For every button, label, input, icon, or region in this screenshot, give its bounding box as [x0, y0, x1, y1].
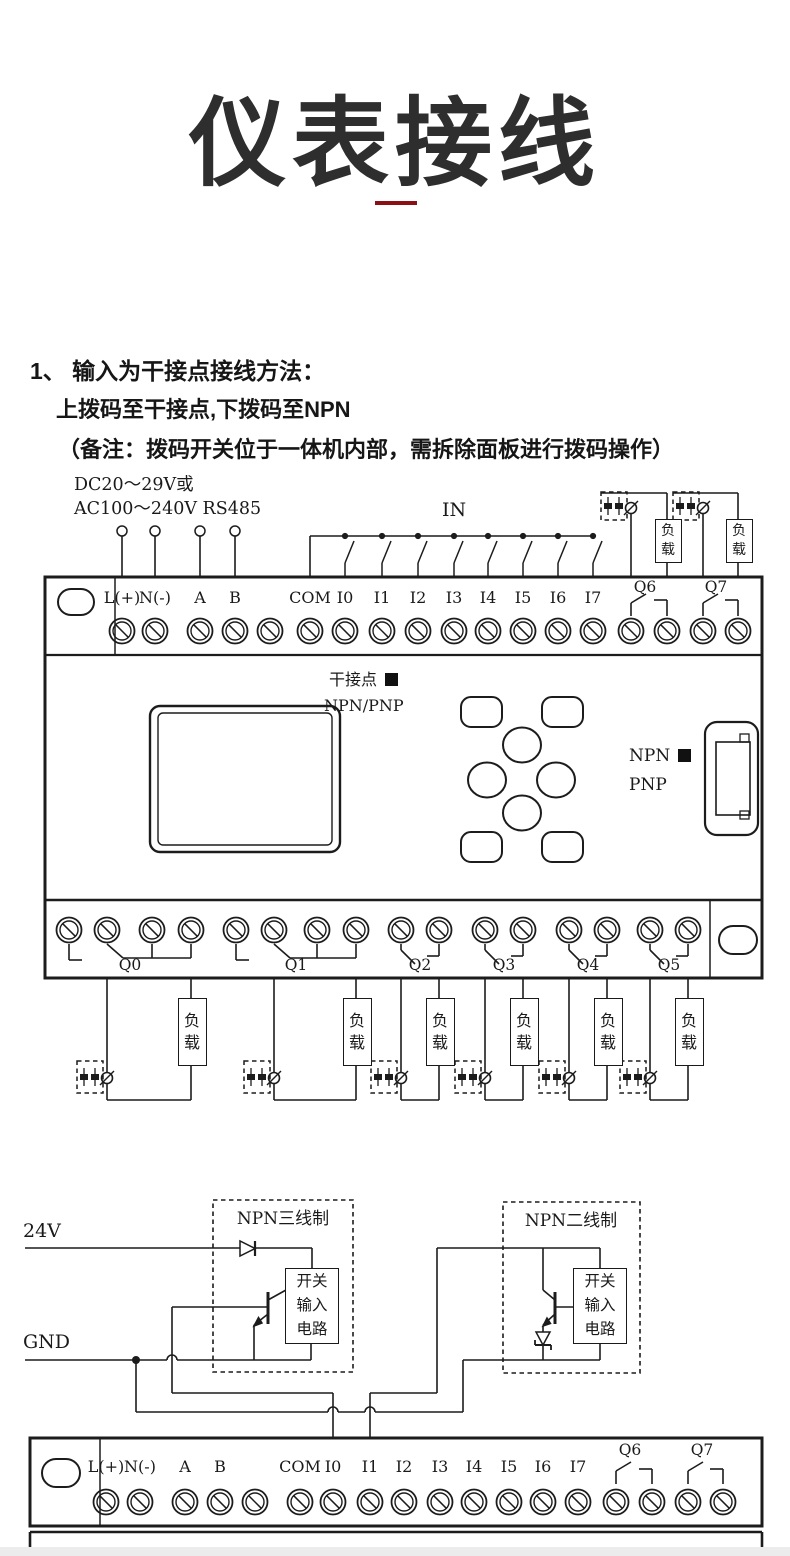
dip-switch2-square-icon: [678, 749, 691, 762]
switch-blade-icon: [488, 541, 497, 563]
lcd-screen: [150, 706, 340, 852]
screw-slot: [327, 1496, 340, 1509]
terminal-label: COM: [279, 1457, 321, 1476]
screw-slot: [625, 625, 638, 638]
terminal-label: B: [214, 1457, 226, 1476]
screw-slot: [644, 924, 657, 937]
screw-slot: [63, 924, 76, 937]
screw-slot: [433, 924, 446, 937]
wire-terminal-ring: [150, 526, 160, 536]
power-label-line1: DC20～29V或: [74, 471, 194, 496]
dip-switch1-text: 干接点: [329, 670, 377, 689]
screw-slot: [717, 1496, 730, 1509]
terminal-label: I3: [432, 1457, 449, 1476]
power-label-line2: AC100～240V RS485: [74, 495, 261, 520]
section1-line2: 上拨码至干接点,下拨码至NPN: [56, 392, 351, 424]
switch-input-circuit-box-2wire: 开关 输入 电路: [573, 1268, 627, 1344]
suppressor-icon: [615, 503, 623, 509]
load-box: 负载: [675, 998, 704, 1066]
load-box: 负载: [510, 998, 539, 1066]
screw-slot: [230, 924, 243, 937]
screw-slot: [503, 1496, 516, 1509]
suppressor-icon: [623, 1074, 631, 1080]
suppressor-icon: [687, 503, 695, 509]
terminal-label: N(-): [139, 588, 171, 607]
dip-switch1-sub: NPN/PNP: [324, 696, 404, 715]
load-label: 负载: [516, 1010, 533, 1053]
screw-slot: [434, 1496, 447, 1509]
screw-slot: [601, 924, 614, 937]
suppressor-icon: [676, 503, 684, 509]
suppressor-icon: [634, 1074, 642, 1080]
circuit-line: 开关: [286, 1269, 338, 1293]
screw-slot: [100, 1496, 113, 1509]
terminal-label: I7: [570, 1457, 587, 1476]
load-label: 负载: [349, 1010, 366, 1053]
terminal-label: A: [179, 1457, 191, 1476]
relay-label: Q6: [619, 1441, 642, 1459]
suppressor-icon: [91, 1074, 99, 1080]
terminal-label: I2: [410, 588, 427, 607]
bus-junction-dot: [555, 533, 560, 538]
keypad-button: [542, 697, 583, 727]
circuit-line: 电路: [574, 1317, 626, 1341]
suppressor-icon: [258, 1074, 266, 1080]
sensor2-title: NPN二线制: [525, 1206, 617, 1231]
wire-terminal-ring: [195, 526, 205, 536]
mounting-hole: [719, 926, 757, 954]
load-label: 负载: [732, 522, 747, 560]
page-cut-gray-bar: [0, 1547, 790, 1556]
relay-label: Q1: [285, 956, 308, 974]
keypad-nav-button: [503, 796, 541, 831]
terminal-label: I0: [325, 1457, 342, 1476]
switch-blade-icon: [382, 541, 391, 563]
load-box: 负载: [726, 519, 753, 563]
terminal-label: L(+): [104, 588, 141, 607]
load-box: 负载: [178, 998, 207, 1066]
screw-slot: [682, 924, 695, 937]
screw-slot: [214, 1496, 227, 1509]
screw-slot: [517, 924, 530, 937]
screw-slot: [572, 1496, 585, 1509]
dip-switch1-label: 干接点: [329, 666, 398, 690]
wire-terminal-ring: [230, 526, 240, 536]
terminal-label: I5: [515, 588, 532, 607]
terminal-label: I6: [535, 1457, 552, 1476]
screw-slot: [149, 625, 162, 638]
screw-slot: [311, 924, 324, 937]
screw-slot: [101, 924, 114, 937]
section1-line3: （备注：拨码开关位于一体机内部，需拆除面板进行拨码操作）: [58, 432, 674, 464]
mounting-hole: [58, 589, 94, 615]
load-label: 负载: [661, 522, 676, 560]
load-label: 负载: [184, 1010, 201, 1053]
load-box: 负载: [343, 998, 372, 1066]
screw-slot: [412, 625, 425, 638]
screw-slot: [395, 924, 408, 937]
dip-switch2-sub: PNP: [629, 775, 667, 795]
suppressor-icon: [374, 1074, 382, 1080]
bus-junction-dot: [590, 533, 595, 538]
screw-slot: [364, 1496, 377, 1509]
terminal-label: I0: [337, 588, 354, 607]
screw-slot: [682, 1496, 695, 1509]
suppressor-icon: [469, 1074, 477, 1080]
screw-slot: [448, 625, 461, 638]
zener-diode-icon: [536, 1332, 550, 1345]
screw-slot: [468, 1496, 481, 1509]
screw-slot: [552, 625, 565, 638]
terminal-label: I6: [550, 588, 567, 607]
screw-slot: [732, 625, 745, 638]
load-box: 负载: [594, 998, 623, 1066]
dip-switch2-text: NPN: [629, 746, 670, 766]
terminal-label: COM: [289, 588, 331, 607]
circuit-line: 输入: [286, 1293, 338, 1317]
screw-slot: [646, 1496, 659, 1509]
screw-slot: [398, 1496, 411, 1509]
title-underline-decoration: [375, 201, 417, 205]
suppressor-icon: [247, 1074, 255, 1080]
relay-label: Q0: [119, 956, 142, 974]
in-bus-label: IN: [442, 499, 466, 521]
screw-slot: [249, 1496, 262, 1509]
screw-slot: [339, 625, 352, 638]
rail-gnd-label: GND: [23, 1331, 70, 1353]
bus-junction-dot: [415, 533, 420, 538]
switch-blade-icon: [454, 541, 463, 563]
sensor3-title: NPN三线制: [237, 1204, 329, 1229]
relay-label: Q2: [409, 956, 432, 974]
terminal-label: I5: [501, 1457, 518, 1476]
load-label: 负载: [600, 1010, 617, 1053]
screw-slot: [134, 1496, 147, 1509]
load-label: 负载: [681, 1010, 698, 1053]
suppressor-icon: [553, 1074, 561, 1080]
load-label: 负载: [432, 1010, 449, 1053]
suppressor-icon: [458, 1074, 466, 1080]
relay-contact-icon: [688, 1462, 703, 1471]
terminal-label: I3: [446, 588, 463, 607]
suppressor-icon: [542, 1074, 550, 1080]
screw-slot: [179, 1496, 192, 1509]
relay-label: Q6: [634, 578, 657, 596]
switch-input-circuit-box-3wire: 开关 输入 电路: [285, 1268, 339, 1344]
keypad-button: [542, 832, 583, 862]
screw-slot: [294, 1496, 307, 1509]
wire-terminal-ring: [117, 526, 127, 536]
load-box: 负载: [426, 998, 455, 1066]
side-connector-inner: [716, 742, 750, 815]
rail-24v-label: 24V: [23, 1220, 61, 1242]
side-connector-pin: [740, 734, 749, 742]
relay-contact-icon: [616, 1462, 631, 1471]
screw-slot: [610, 1496, 623, 1509]
screw-slot: [185, 924, 198, 937]
bus-junction-dot: [451, 533, 456, 538]
suppressor-icon: [385, 1074, 393, 1080]
screw-slot: [146, 924, 159, 937]
mounting-hole: [42, 1459, 80, 1487]
relay-label: Q3: [493, 956, 516, 974]
screw-slot: [482, 625, 495, 638]
screw-slot: [229, 625, 242, 638]
terminal-label: N(-): [124, 1457, 156, 1476]
circuit-line: 开关: [574, 1269, 626, 1293]
switch-blade-icon: [418, 541, 427, 563]
screw-slot: [268, 924, 281, 937]
dip-switch2-label: NPN: [629, 746, 691, 766]
switch-blade-icon: [558, 541, 567, 563]
page: 仪表接线 1、 输入为干接点接线方法： 上拨码至干接点,下拨码至NPN （备注：…: [0, 0, 790, 1556]
page-title: 仪表接线: [0, 64, 790, 205]
terminal-label: L(+): [88, 1457, 125, 1476]
terminal-label: I2: [396, 1457, 413, 1476]
bus-junction-dot: [379, 533, 384, 538]
wiring-diagram-svg: [0, 0, 790, 1556]
keypad-button: [461, 697, 502, 727]
circuit-line: 电路: [286, 1317, 338, 1341]
wire: [268, 1290, 286, 1300]
screw-slot: [661, 625, 674, 638]
switch-blade-icon: [593, 541, 602, 563]
terminal-label: I4: [466, 1457, 483, 1476]
screw-slot: [194, 625, 207, 638]
terminal-label: I1: [374, 588, 391, 607]
screw-slot: [517, 625, 530, 638]
keypad-button: [461, 832, 502, 862]
terminal-label: I4: [480, 588, 497, 607]
lcd-screen-inner: [158, 713, 332, 845]
screw-slot: [479, 924, 492, 937]
bus-junction-dot: [485, 533, 490, 538]
dip-switch1-square-icon: [385, 673, 398, 686]
screw-slot: [264, 625, 277, 638]
bus-junction-dot: [342, 533, 347, 538]
terminal-label: I1: [362, 1457, 379, 1476]
relay-label: Q7: [691, 1441, 714, 1459]
terminal-label: I7: [585, 588, 602, 607]
screw-slot: [304, 625, 317, 638]
screw-slot: [376, 625, 389, 638]
load-box: 负载: [655, 519, 682, 563]
relay-label: Q5: [658, 956, 681, 974]
screw-slot: [587, 625, 600, 638]
relay-label: Q4: [577, 956, 600, 974]
section1-heading: 1、 输入为干接点接线方法：: [30, 352, 325, 386]
suppressor-icon: [80, 1074, 88, 1080]
relay-label: Q7: [705, 578, 728, 596]
keypad-nav-button: [468, 763, 506, 798]
keypad-nav-button: [503, 728, 541, 763]
bus-junction-dot: [520, 533, 525, 538]
wire: [543, 1290, 555, 1300]
screw-slot: [563, 924, 576, 937]
switch-blade-icon: [345, 541, 354, 563]
screw-slot: [350, 924, 363, 937]
screw-slot: [537, 1496, 550, 1509]
screw-slot: [116, 625, 129, 638]
terminal-label: B: [229, 588, 241, 607]
circuit-line: 输入: [574, 1293, 626, 1317]
diode-icon: [240, 1241, 255, 1256]
switch-blade-icon: [523, 541, 532, 563]
suppressor-icon: [604, 503, 612, 509]
screw-slot: [697, 625, 710, 638]
keypad-nav-button: [537, 763, 575, 798]
terminal-label: A: [194, 588, 206, 607]
